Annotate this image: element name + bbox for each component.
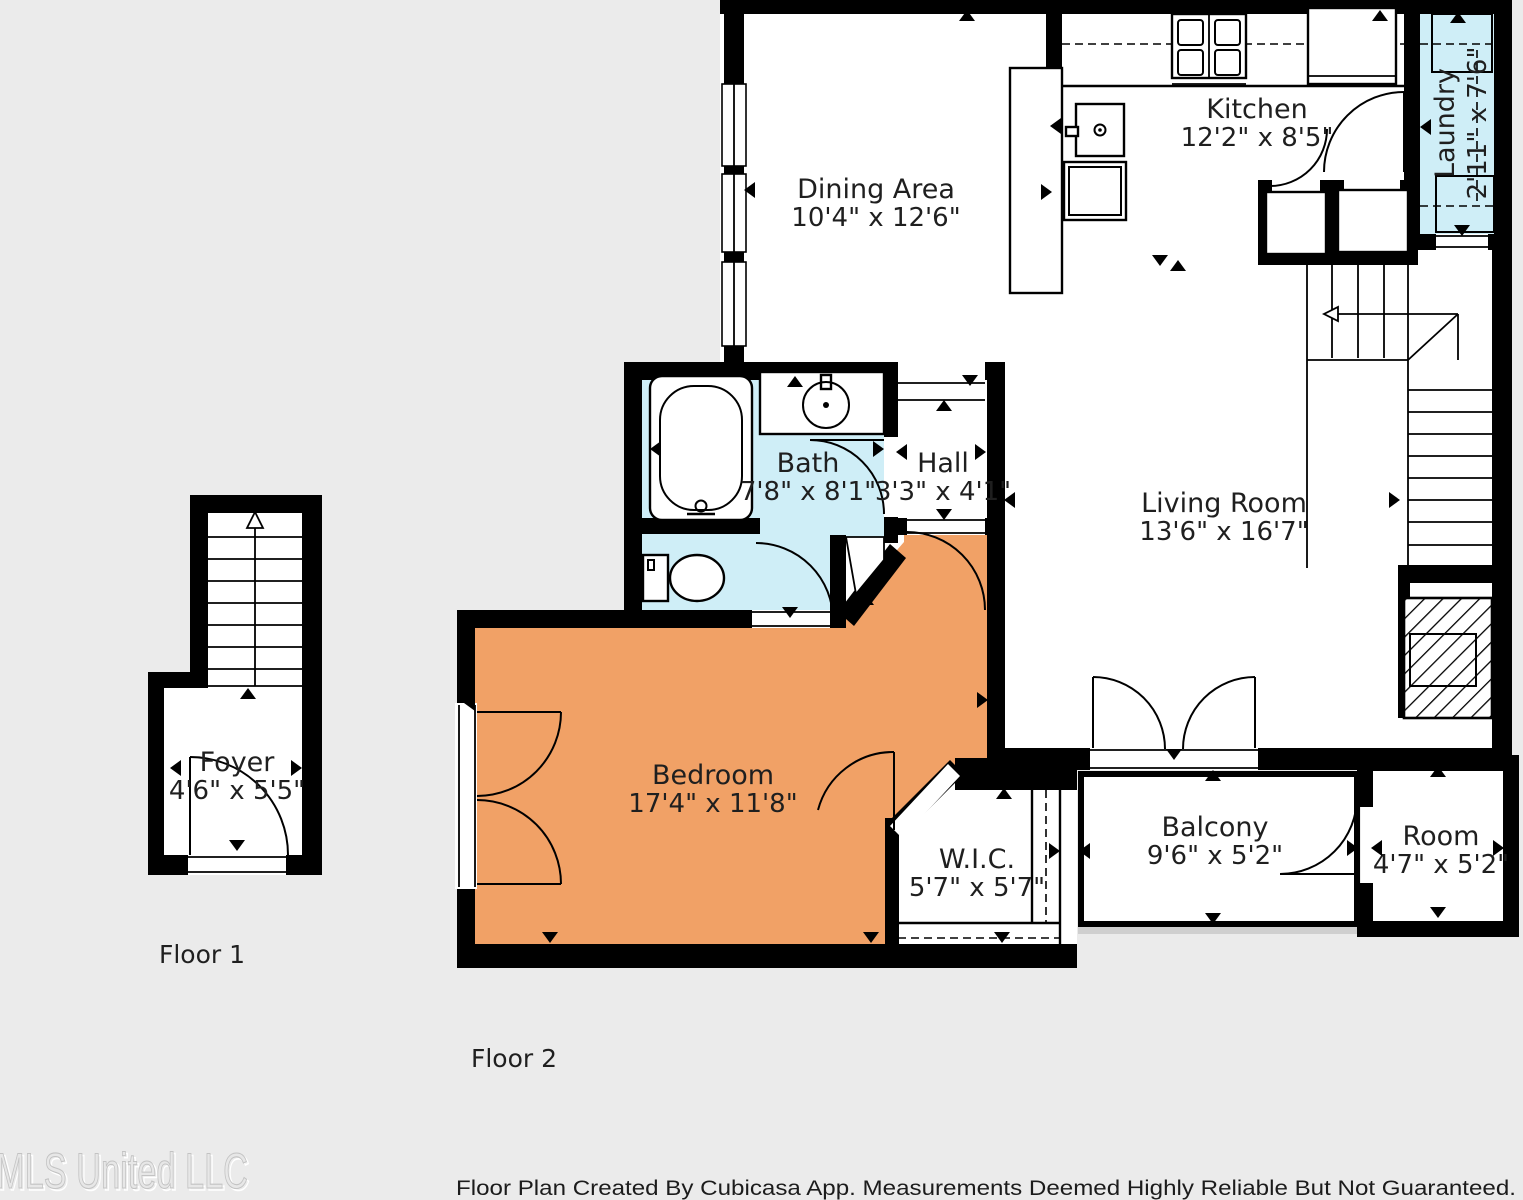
- room-dims: 4'7" x 5'2": [1373, 850, 1509, 880]
- bedroom-label: Bedroom: [652, 760, 774, 791]
- hall-dims: 3'3" x 4'1": [875, 477, 1011, 507]
- balcony-label: Balcony: [1161, 812, 1268, 843]
- wic-label: W.I.C.: [939, 844, 1015, 875]
- floor-plan-canvas: Dining Area 10'4" x 12'6" Kitchen 12'2" …: [0, 0, 1523, 1200]
- room-label: Room: [1403, 821, 1480, 852]
- floor2-caption: Floor 2: [471, 1044, 557, 1073]
- wic-dims: 5'7" x 5'7": [909, 873, 1045, 903]
- watermark-text: MLS United LLC: [0, 1143, 248, 1199]
- dining-label: Dining Area: [797, 174, 955, 205]
- balcony-shadow: [1078, 927, 1360, 934]
- living-room-label: Living Room: [1141, 488, 1307, 519]
- closet-right: [1338, 190, 1408, 252]
- floor2-plan: Dining Area 10'4" x 12'6" Kitchen 12'2" …: [455, 0, 1519, 968]
- floor1-openings: [188, 855, 286, 875]
- floor-plan-page: Dining Area 10'4" x 12'6" Kitchen 12'2" …: [0, 0, 1523, 1200]
- bathtub: [650, 376, 752, 520]
- laundry-label: Laundry: [1430, 68, 1461, 178]
- kitchen-island-counter: [1010, 68, 1062, 293]
- fireplace-hatch: [1404, 598, 1492, 718]
- dishwasher: [1064, 162, 1126, 220]
- footer-disclaimer: Floor Plan Created By Cubicasa App. Meas…: [456, 1177, 1516, 1200]
- bath-dims: 7'8" x 8'1": [740, 477, 876, 507]
- dining-dims: 10'4" x 12'6": [791, 203, 960, 233]
- kitchen-label: Kitchen: [1206, 94, 1307, 125]
- laundry-dims: 2'11" x 7'6": [1463, 47, 1493, 200]
- balcony-dims: 9'6" x 5'2": [1147, 841, 1283, 871]
- floor1-plan: Foyer 4'6" x 5'5": [148, 495, 322, 875]
- toilet-tank: [643, 555, 668, 601]
- floor1-caption: Floor 1: [159, 940, 245, 969]
- foyer-dims: 4'6" x 5'5": [169, 776, 305, 806]
- closet-left: [1266, 192, 1326, 254]
- toilet-bowl: [670, 555, 724, 601]
- watermark: MLS United LLC MLS United LLC: [0, 1143, 250, 1200]
- foyer-label: Foyer: [200, 747, 276, 778]
- hall-label: Hall: [917, 448, 969, 479]
- kitchen-dims: 12'2" x 8'5": [1181, 123, 1334, 153]
- bedroom-dims: 17'4" x 11'8": [628, 789, 797, 819]
- bath-label: Bath: [777, 448, 840, 479]
- living-room-dims: 13'6" x 16'7": [1139, 517, 1308, 547]
